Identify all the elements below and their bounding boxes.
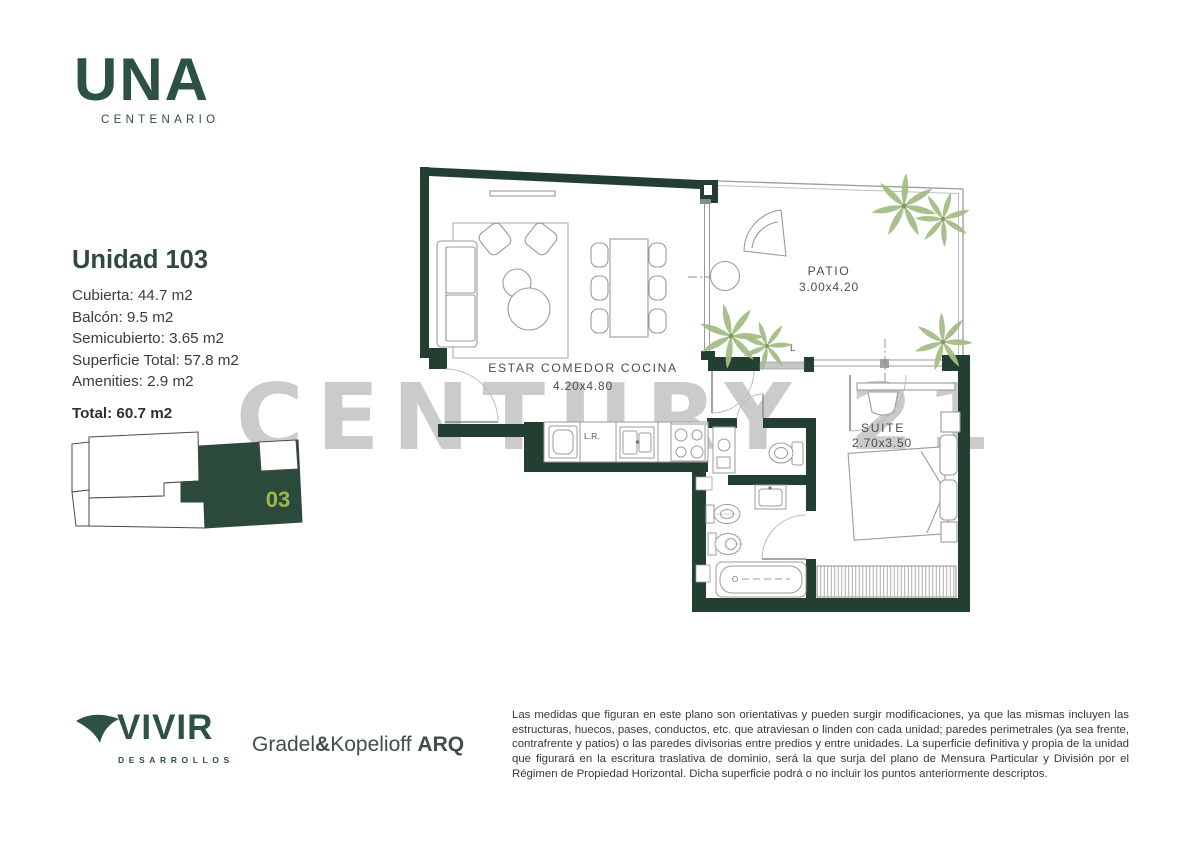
toilet <box>769 442 803 465</box>
nightstand <box>941 522 957 542</box>
unit-title: Unidad 103 <box>72 246 239 275</box>
architect-name1: Gradel <box>252 733 315 756</box>
brand-name: UNA <box>74 50 219 110</box>
room-label-patio: PATIO <box>808 264 851 278</box>
unit-detail-semicubierto: Semicubierto: 3.65 m2 <box>72 328 239 350</box>
sliding-door <box>760 359 942 369</box>
dining-set <box>591 239 666 337</box>
keyplan-unit-outline <box>72 442 89 492</box>
unit-detail-cubierta: Cubierta: 44.7 m2 <box>72 285 239 307</box>
architect-suffix: ARQ <box>417 733 464 756</box>
wall-niche <box>696 565 710 582</box>
accent-chair <box>523 221 559 257</box>
desk <box>857 383 955 390</box>
bathroom-door <box>762 515 806 559</box>
laundry-label: L.R. <box>584 431 600 441</box>
building-keyplan: 03 <box>68 425 313 550</box>
architect-amp: & <box>315 733 330 756</box>
hall-door <box>712 371 754 413</box>
vanity-sink <box>755 485 786 509</box>
architect-logo: Gradel&Kopelioff ARQ <box>252 733 464 757</box>
keyplan-unit-number: 03 <box>266 487 290 512</box>
unit-detail-superficie-total: Superficie Total: 57.8 m2 <box>72 350 239 372</box>
developer-name: VIVIR <box>117 710 213 745</box>
nightstand <box>941 412 960 432</box>
bathroom-fixtures <box>706 427 806 597</box>
brand-logo: UNA CENTENARIO <box>74 50 219 126</box>
corner-label: L <box>790 343 795 354</box>
pillow <box>940 435 957 475</box>
toilet <box>708 533 742 555</box>
unit-info: Unidad 103 Cubierta: 44.7 m2 Balcón: 9.5… <box>72 246 239 422</box>
keyplan-notch <box>259 440 298 471</box>
developer-tagline: DESARROLLOS <box>118 755 234 765</box>
developer-logo: VIVIR DESARROLLOS <box>75 710 234 765</box>
brand-subtitle: CENTENARIO <box>74 114 219 126</box>
patio-furniture <box>711 210 787 291</box>
entry-door <box>445 369 498 422</box>
room-dims-suite: 2.70x3.50 <box>852 436 912 450</box>
wall-niche <box>696 477 712 490</box>
kitchen-sink <box>620 427 654 458</box>
pillow <box>940 480 957 520</box>
shelf <box>490 191 555 196</box>
coffee-table <box>508 288 550 330</box>
unit-total: Total: 60.7 m2 <box>72 405 239 422</box>
floorplan-drawing: ESTAR COMEDOR COCINA 4.20x4.80 PATIO 3.0… <box>420 155 995 635</box>
room-label-estar: ESTAR COMEDOR COCINA <box>488 361 678 375</box>
accent-chair <box>477 221 513 257</box>
bed <box>848 447 949 540</box>
patio-table <box>711 262 740 291</box>
toilet-door <box>737 394 763 419</box>
wardrobe <box>817 566 956 597</box>
bidet <box>706 505 740 524</box>
sofa <box>437 241 477 347</box>
room-dims-estar: 4.20x4.80 <box>553 379 613 393</box>
dining-table <box>610 239 648 337</box>
kitchen-fixtures <box>544 422 708 462</box>
unit-detail-amenities: Amenities: 2.9 m2 <box>72 371 239 393</box>
unit-detail-balcon: Balcón: 9.5 m2 <box>72 307 239 329</box>
stove <box>671 424 708 461</box>
living-furniture <box>437 191 666 358</box>
lounge-chair <box>744 210 786 256</box>
wall-notch <box>704 185 712 195</box>
floorplan-sheet: CENTURY 21 UNA CENTENARIO Unidad 103 Cub… <box>0 0 1190 841</box>
architect-name2: Kopelioff <box>330 733 411 756</box>
room-dims-patio: 3.00x4.20 <box>799 280 859 294</box>
utility-cabinet <box>713 427 735 473</box>
vivir-leaf-icon <box>75 710 121 752</box>
bathtub <box>716 562 806 597</box>
room-label-suite: SUITE <box>861 421 905 435</box>
keyplan-unit-outline <box>72 490 89 526</box>
desk-chair <box>868 392 898 415</box>
washing-machine <box>549 426 577 458</box>
legal-disclaimer: Las medidas que figuran en este plano so… <box>512 708 1129 782</box>
